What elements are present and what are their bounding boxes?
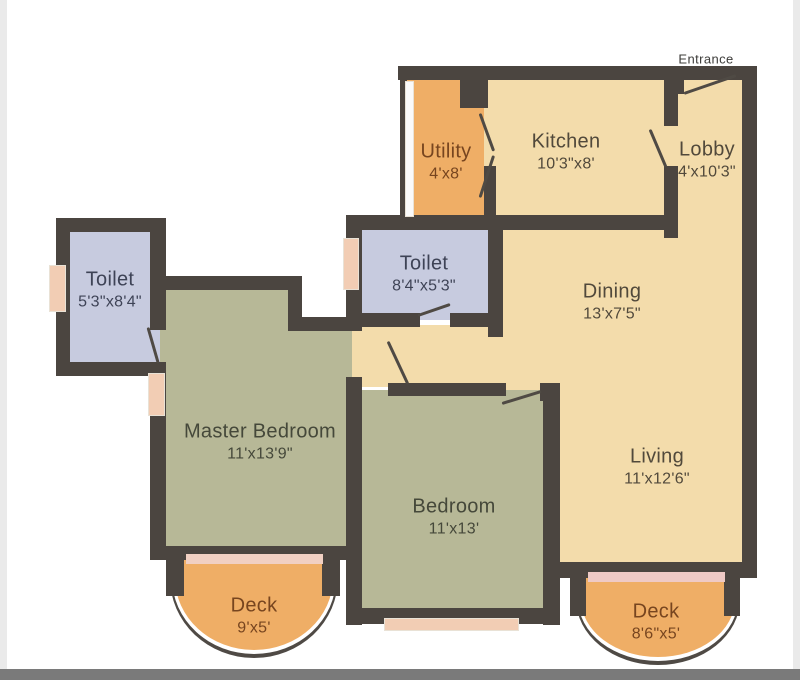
window-utility [406, 82, 413, 216]
left-edge-strip [0, 0, 7, 680]
room-name: Toilet [392, 251, 456, 277]
room-dims: 5'3"x8'4" [78, 293, 142, 314]
wall-left-column-upper [150, 218, 166, 330]
deck-right-door-strip [588, 572, 725, 582]
wall-mid-column-lower [346, 377, 362, 625]
deck-left-door-strip [186, 554, 323, 564]
room-dims: 8'6"x5' [632, 625, 681, 646]
wall-master-top [156, 276, 302, 290]
room-dims: 8'4"x5'3" [392, 277, 456, 298]
wall-kitchen-lobby-lower [664, 166, 678, 238]
room-label-dining: Dining 13'x7'5" [583, 279, 642, 326]
room-label-toilet-master: Toilet 5'3"x8'4" [78, 267, 142, 314]
window-master-bedroom [149, 374, 164, 415]
right-edge-strip [793, 0, 800, 680]
room-label-bedroom: Bedroom 11'x13' [412, 494, 495, 541]
room-label-master-bedroom: Master Bedroom 11'x13'9" [184, 419, 336, 466]
wall-bedroom-top [388, 383, 506, 396]
floor-plan: Entrance Utility 4'x8' Kitchen 10'3"x8' … [0, 0, 800, 680]
room-name: Toilet [78, 267, 142, 293]
room-label-deck-right: Deck 8'6"x5' [632, 599, 681, 646]
room-name: Utility [421, 139, 472, 165]
room-fill-master-bedroom [158, 282, 296, 552]
wall-kitchen-bottom [346, 215, 668, 230]
room-dims: 4'x8' [421, 165, 472, 186]
wall-deck-left-stub-a [166, 556, 184, 596]
wall-toilet-common-bottom-right [450, 313, 503, 327]
room-dims: 10'3"x8' [532, 155, 601, 176]
room-label-kitchen: Kitchen 10'3"x8' [532, 129, 601, 176]
wall-toilet-common-bottom-left [346, 313, 420, 327]
room-name: Deck [632, 599, 681, 625]
room-label-toilet-common: Toilet 8'4"x5'3" [392, 251, 456, 298]
wall-entrance-stub [670, 78, 684, 94]
wall-top [398, 66, 757, 80]
wall-bedroom-right [543, 383, 560, 625]
room-name: Lobby [678, 137, 736, 163]
wall-deck-right-stub-a [570, 574, 586, 616]
window-bedroom [385, 619, 518, 630]
window-toilet-master [50, 266, 65, 311]
wall-right [742, 66, 757, 578]
bottom-gray-bar [0, 669, 800, 680]
room-name: Deck [231, 593, 278, 619]
room-label-utility: Utility 4'x8' [421, 139, 472, 186]
room-label-lobby: Lobby 4'x10'3" [678, 137, 736, 184]
room-label-living: Living 11'x12'6" [624, 444, 690, 491]
room-dims: 11'x13'9" [184, 445, 336, 466]
room-dims: 4'x10'3" [678, 163, 736, 184]
room-dims: 11'x13' [412, 520, 495, 541]
room-name: Kitchen [532, 129, 601, 155]
window-toilet-common [344, 239, 358, 289]
room-name: Living [624, 444, 690, 470]
wall-deck-right-stub-b [724, 574, 740, 616]
room-dims: 11'x12'6" [624, 470, 690, 491]
wall-deck-left-stub-b [322, 556, 340, 596]
room-dims: 13'x7'5" [583, 305, 642, 326]
room-name: Master Bedroom [184, 419, 336, 445]
room-name: Dining [583, 279, 642, 305]
room-fill-hallway [352, 325, 508, 387]
entrance-label: Entrance [678, 52, 733, 67]
wall-utility-kitchen-notch [460, 78, 488, 108]
room-dims: 9'x5' [231, 619, 278, 640]
room-name: Bedroom [412, 494, 495, 520]
room-label-deck-left: Deck 9'x5' [231, 593, 278, 640]
